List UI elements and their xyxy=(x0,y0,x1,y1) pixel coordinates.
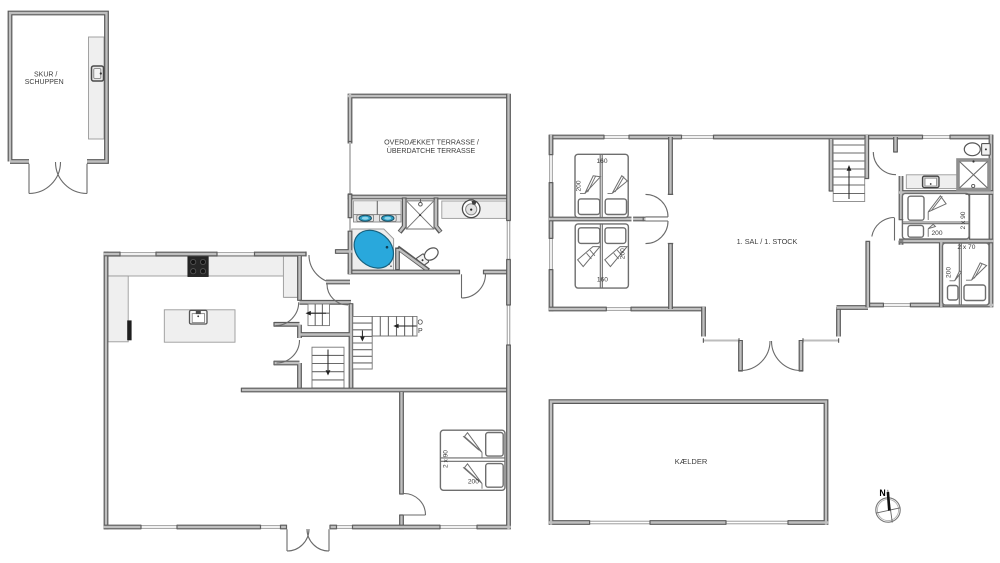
svg-text:2 x 90: 2 x 90 xyxy=(960,211,967,229)
svg-text:2 x 90: 2 x 90 xyxy=(442,450,449,468)
svg-text:200: 200 xyxy=(946,267,953,278)
svg-text:SKUR /: SKUR / xyxy=(34,71,57,78)
svg-text:160: 160 xyxy=(597,277,608,284)
svg-text:1. SAL / 1. STOCK: 1. SAL / 1. STOCK xyxy=(737,237,798,246)
svg-text:OVERDÆKKET TERRASSE /: OVERDÆKKET TERRASSE / xyxy=(384,139,479,147)
svg-text:2 x 70: 2 x 70 xyxy=(957,244,975,251)
svg-text:N: N xyxy=(879,488,885,498)
svg-text:KÆLDER: KÆLDER xyxy=(675,457,708,466)
svg-text:200: 200 xyxy=(620,248,627,259)
svg-text:200: 200 xyxy=(576,180,583,191)
svg-text:200: 200 xyxy=(931,230,942,237)
svg-text:P: P xyxy=(418,328,423,335)
svg-text:O: O xyxy=(418,319,424,326)
svg-text:160: 160 xyxy=(596,158,607,165)
svg-text:200: 200 xyxy=(468,478,479,485)
svg-text:SCHUPPEN: SCHUPPEN xyxy=(25,79,64,86)
svg-text:ÜBERDATCHE TERRASSE: ÜBERDATCHE TERRASSE xyxy=(387,147,476,155)
